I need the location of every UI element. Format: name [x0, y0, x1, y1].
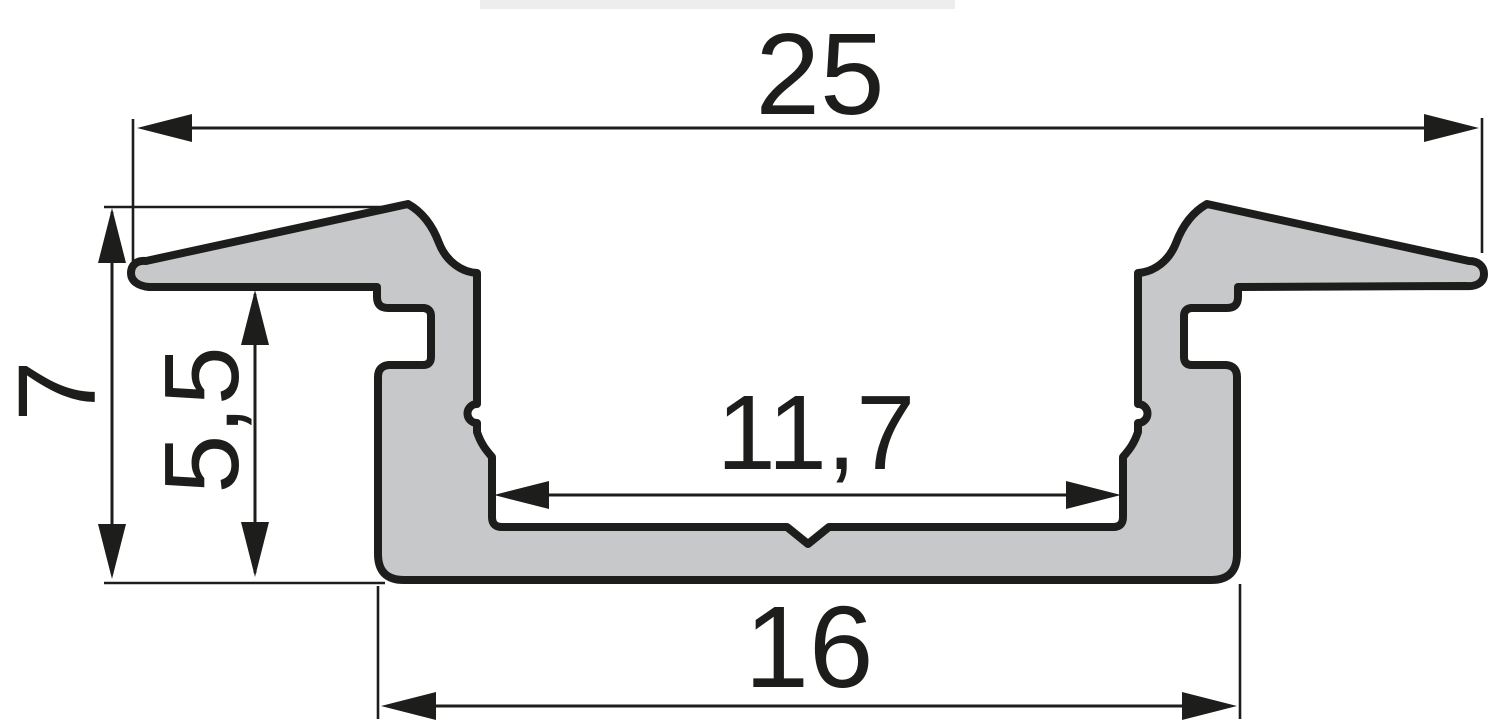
- arrowhead-left-icon: [137, 114, 192, 142]
- arrowhead-down-icon: [98, 524, 126, 579]
- dimension-label-base-width: 16: [744, 582, 873, 712]
- arrowhead-left-icon: [381, 692, 436, 720]
- dimension-label-overall-height: 7: [0, 360, 119, 421]
- arrowhead-up-icon: [98, 208, 126, 263]
- technical-drawing-canvas: 25 7 5,5 11,7: [0, 0, 1500, 721]
- dimension-recess-depth: 5,5: [143, 290, 269, 577]
- dimension-base-width: 16: [378, 582, 1240, 720]
- dimension-label-overall-width: 25: [755, 9, 884, 139]
- profile-drawing-svg: 25 7 5,5 11,7: [0, 0, 1500, 721]
- arrowhead-down-icon: [241, 522, 269, 577]
- dimension-label-inner-width: 11,7: [717, 374, 915, 492]
- arrowhead-up-icon: [241, 290, 269, 345]
- top-gray-bar: [480, 0, 955, 9]
- arrowhead-right-icon: [1424, 114, 1479, 142]
- arrowhead-left-icon: [494, 481, 549, 509]
- dimension-inner-width: 11,7: [494, 374, 1121, 509]
- dimension-label-recess-depth: 5,5: [143, 346, 261, 493]
- arrowhead-right-icon: [1066, 481, 1121, 509]
- arrowhead-right-icon: [1182, 692, 1237, 720]
